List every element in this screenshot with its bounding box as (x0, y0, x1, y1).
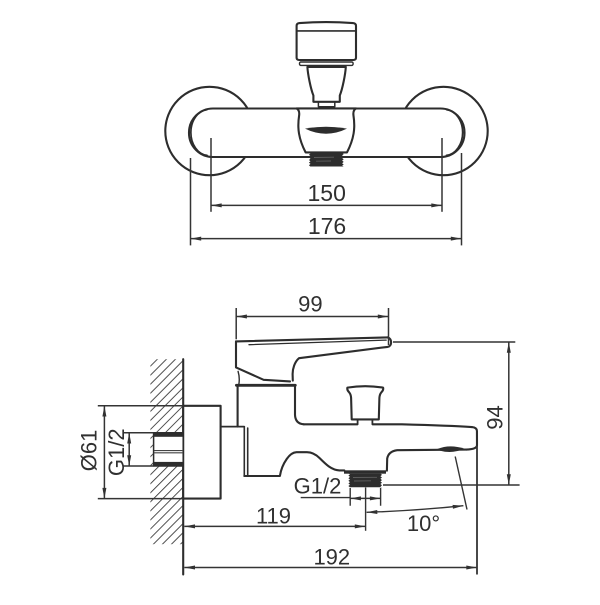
svg-text:G1/2: G1/2 (294, 473, 342, 498)
svg-text:176: 176 (308, 213, 346, 239)
svg-text:10°: 10° (407, 511, 440, 536)
svg-text:99: 99 (298, 292, 322, 317)
svg-text:G1/2: G1/2 (104, 428, 129, 476)
svg-text:94: 94 (482, 405, 507, 429)
svg-text:192: 192 (313, 545, 350, 570)
svg-text:119: 119 (256, 503, 291, 528)
svg-text:150: 150 (308, 180, 346, 206)
svg-text:Ø61: Ø61 (76, 430, 101, 472)
